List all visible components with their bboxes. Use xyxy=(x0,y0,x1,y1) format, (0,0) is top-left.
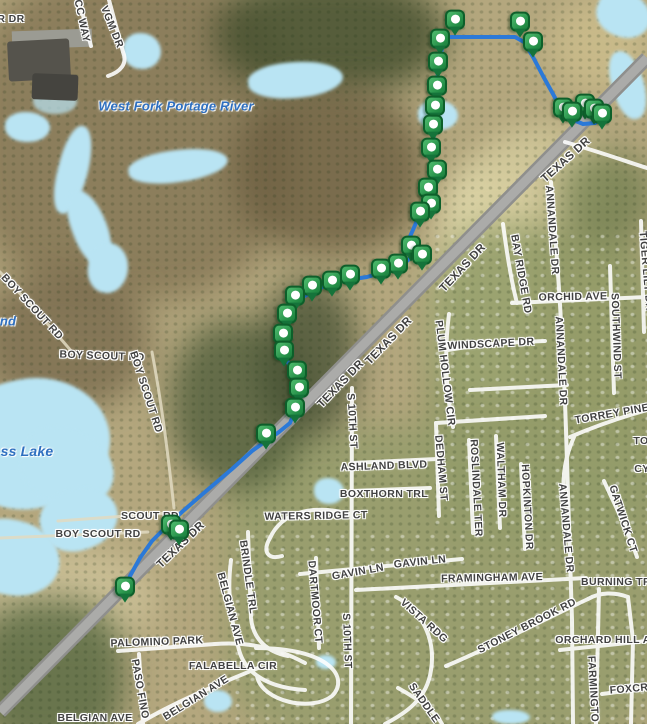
terrain-marsh-west xyxy=(0,270,150,410)
street-label: BOY SCOUT RD xyxy=(59,349,144,364)
street-label: ROSLINDALE TER xyxy=(467,439,484,537)
street-label: BELGIAN AVE xyxy=(58,712,133,724)
street-label: VISTA RDG xyxy=(398,597,450,646)
lake-edge-south xyxy=(0,512,66,602)
waypoint-marker[interactable] xyxy=(388,254,408,274)
pond-boxthorn xyxy=(314,478,344,504)
waypoint-marker[interactable] xyxy=(412,245,432,265)
terrain-residential-south xyxy=(225,425,647,724)
waypoint-marker[interactable] xyxy=(562,102,582,122)
river-wind-2 xyxy=(59,184,119,271)
street-label: TEXAS DR xyxy=(539,135,593,185)
waypoint-marker[interactable] xyxy=(445,10,465,30)
terrain-field-center xyxy=(438,165,538,400)
houses-texture-east xyxy=(430,230,647,530)
street-label: BELGIAN AVE xyxy=(161,673,231,723)
water-label: West Fork Portage River xyxy=(98,99,253,114)
street-label: SADDLE xyxy=(406,681,442,724)
street-label: ORCHID AVE xyxy=(539,290,608,303)
waypoint-marker[interactable] xyxy=(421,138,441,158)
river-channel-label xyxy=(247,58,345,102)
terrain-field-southwest xyxy=(0,550,155,650)
street-label: ORCHARD HILL A xyxy=(555,634,647,646)
street-label: DARTMOOR CT xyxy=(305,560,324,644)
street-label: S 10TH ST xyxy=(345,393,360,449)
street-label: GATWICK CT xyxy=(606,484,639,555)
road-layer xyxy=(0,0,647,724)
pond-top xyxy=(123,33,161,69)
terrain-forest-top xyxy=(215,0,445,95)
water-label: nd xyxy=(0,314,16,329)
river-topright-1 xyxy=(590,0,647,45)
street-label: S 10TH ST xyxy=(340,613,354,669)
waypoint-marker[interactable] xyxy=(285,398,305,418)
waypoint-marker[interactable] xyxy=(410,202,430,222)
street-label: VGM DR xyxy=(98,4,126,50)
terrain-field-upper xyxy=(475,125,605,240)
pond-belgian xyxy=(204,690,232,712)
building-block-1 xyxy=(12,29,93,50)
river-wind-3 xyxy=(84,240,132,296)
pond-northwest xyxy=(5,112,50,142)
street-label: DEDHAM ST xyxy=(432,435,450,502)
street-label: ANNANDALE DR xyxy=(543,185,561,275)
street-label: ANNANDALE DR xyxy=(553,316,570,406)
waypoint-marker[interactable] xyxy=(256,424,276,444)
building-block-2 xyxy=(7,38,71,81)
pond-small-south xyxy=(316,655,336,669)
waypoint-marker[interactable] xyxy=(289,378,309,398)
terrain-marsh-northwest xyxy=(0,0,290,300)
street-label: BOY SCOUT RD xyxy=(127,350,165,435)
waypoint-marker[interactable] xyxy=(592,104,612,124)
street-label: ANNANDALE DR xyxy=(556,483,576,573)
waypoint-marker[interactable] xyxy=(510,12,530,32)
waypoint-marker[interactable] xyxy=(427,160,447,180)
street-label: WALTHAM DR xyxy=(494,442,509,517)
street-label: BRINDLE TRL xyxy=(237,539,259,614)
waypoint-marker[interactable] xyxy=(430,29,450,49)
waypoint-marker[interactable] xyxy=(371,259,391,279)
street-label: STONEY BROOK RD xyxy=(476,596,578,656)
street-label: BOXTHORN TRL xyxy=(340,488,428,500)
street-label: WATERS RIDGE CT xyxy=(264,509,367,523)
waypoint-marker[interactable] xyxy=(340,265,360,285)
street-label: TORREY PINE xyxy=(574,402,647,427)
street-label: ASHLAND BLVD xyxy=(340,458,427,473)
street-label: R DR xyxy=(0,13,25,25)
street-label: BELGIAN AVE xyxy=(214,571,245,647)
pond-bottom-edge xyxy=(492,710,530,724)
waypoint-marker[interactable] xyxy=(115,577,135,597)
lake-lobe-mid xyxy=(11,417,125,518)
waypoint-marker[interactable] xyxy=(169,520,189,540)
terrain-trees-topright xyxy=(560,150,647,245)
street-label: TEXAS DR xyxy=(363,315,414,367)
terrain-residential-east xyxy=(425,225,647,545)
lake-main xyxy=(0,361,123,525)
street-label: BOY SCOUT RD xyxy=(55,528,140,540)
street-label: TEXAS DR xyxy=(315,358,366,410)
tree-texture xyxy=(0,0,647,724)
street-label: PALOMINO PARK xyxy=(110,634,203,649)
street-label: TO xyxy=(633,435,647,447)
street-label: CC WAY xyxy=(72,0,93,43)
street-label: BOY SCOUT RD xyxy=(0,272,65,342)
street-label: GAVIN LN xyxy=(331,562,385,583)
river-wind-1 xyxy=(47,123,99,218)
street-label: FOXCR xyxy=(609,681,647,696)
waypoint-marker[interactable] xyxy=(302,276,322,296)
street-label: WINDSCAPE DR xyxy=(447,336,535,353)
water-label: ss Lake xyxy=(1,443,54,459)
street-label: FALABELLA CIR xyxy=(189,660,277,672)
waypoint-marker[interactable] xyxy=(427,76,447,96)
street-label: GAVIN LN xyxy=(393,553,447,570)
street-label: BURNING TR xyxy=(581,576,647,588)
waypoint-marker[interactable] xyxy=(285,286,305,306)
building-block-3 xyxy=(32,73,79,101)
river-arm xyxy=(126,143,229,189)
route-layer xyxy=(0,0,647,724)
waypoint-marker[interactable] xyxy=(523,32,543,52)
street-label: TIGER LILY DR xyxy=(637,231,647,312)
street-label: PASO FINO xyxy=(129,658,151,720)
terrain-forest-southwest xyxy=(0,600,125,724)
street-label: BAY RIDGE RD xyxy=(508,234,534,315)
street-label: PLUM HOLLOW CIR xyxy=(433,320,458,427)
waypoint-marker[interactable] xyxy=(425,96,445,116)
texas-dr-road-surface xyxy=(0,58,647,712)
route-line xyxy=(126,37,603,594)
waypoint-marker[interactable] xyxy=(428,52,448,72)
terrain-marsh-center xyxy=(235,85,425,255)
waypoint-marker[interactable] xyxy=(423,115,443,135)
waypoint-marker[interactable] xyxy=(322,271,342,291)
gravel-roads xyxy=(0,272,182,538)
street-label: HOPKINTON DR xyxy=(519,464,535,550)
street-label: CY xyxy=(634,463,647,475)
map-canvas[interactable]: R DRCC WAYVGM DRWest Fork Portage RiverB… xyxy=(0,0,647,724)
terrain-field-topright xyxy=(550,0,647,90)
waypoint-marker[interactable] xyxy=(277,304,297,324)
lake-lobe-south xyxy=(32,477,127,562)
street-label: SOUTHWIND ST xyxy=(609,293,624,379)
street-label: FRAMINGHAM AVE xyxy=(441,571,543,585)
street-label: FARMINGTO xyxy=(585,656,600,723)
waypoint-marker[interactable] xyxy=(274,341,294,361)
texas-dr-road xyxy=(0,58,647,712)
pond-northwest-2 xyxy=(33,88,77,114)
street-label: TEXAS DR xyxy=(438,241,489,294)
houses-texture-south xyxy=(230,530,647,724)
